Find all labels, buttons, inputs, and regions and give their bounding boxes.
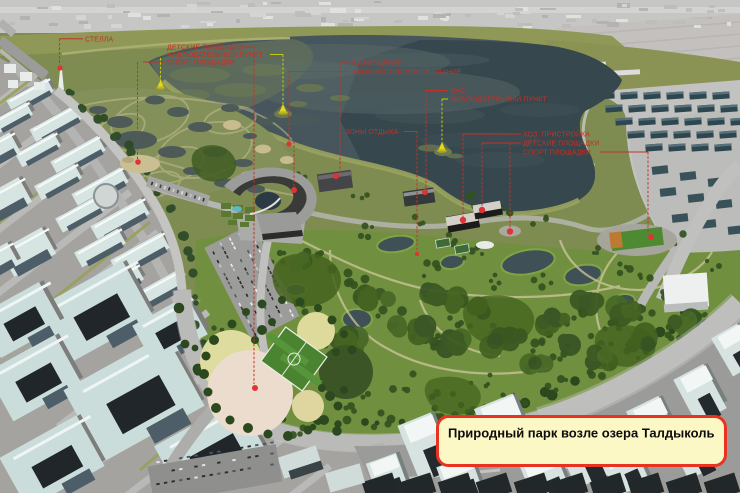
svg-text:Природный парк возле озера Тал: Природный парк возле озера Талдыколь (448, 426, 714, 441)
svg-text:ХОЗ. ПРИСТРОЙКА: ХОЗ. ПРИСТРОЙКА (523, 130, 590, 139)
svg-text:КНС: КНС (451, 88, 466, 95)
svg-text:НАБЛЮДАТЕЛЬНЫЙ ПУНКТ: НАБЛЮДАТЕЛЬНЫЙ ПУНКТ (167, 50, 263, 59)
svg-text:СПОРТ ПЛОЩАДКИ: СПОРТ ПЛОЩАДКИ (167, 60, 235, 67)
svg-text:ВИЗИТ ЦЕНТР: ВИЗИТ ЦЕНТР (352, 61, 402, 68)
svg-text:СТЕЛЛА: СТЕЛЛА (85, 37, 113, 44)
svg-text:АДМИНИСТРАТИВНОЕ ЗДАНИЕ: АДМИНИСТРАТИВНОЕ ЗДАНИЕ (352, 69, 462, 76)
svg-text:СПОРТ ПЛОЩАДКИ: СПОРТ ПЛОЩАДКИ (523, 150, 591, 157)
svg-text:ДЕТСКИЕ ПЛОЩАДКИ: ДЕТСКИЕ ПЛОЩАДКИ (523, 141, 599, 148)
svg-text:ДЕТСКИЕ ПЛОЩАДКИ: ДЕТСКИЕ ПЛОЩАДКИ (167, 45, 243, 52)
svg-text:НАБЛЮДАТЕЛЬНЫЙ ПУНКТ: НАБЛЮДАТЕЛЬНЫЙ ПУНКТ (451, 95, 547, 104)
svg-text:ЗОНЫ ОТДЫХА: ЗОНЫ ОТДЫХА (345, 129, 399, 136)
